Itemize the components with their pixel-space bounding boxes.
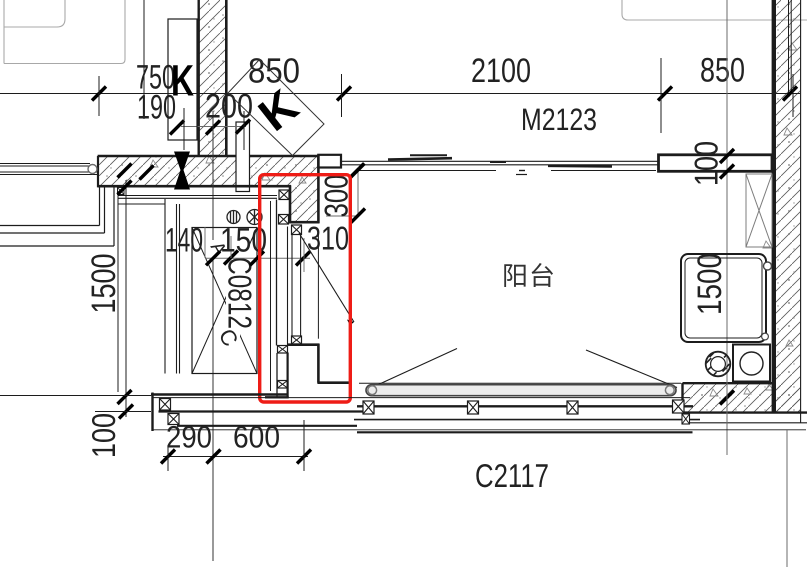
svg-text:1500: 1500 [85,254,123,314]
svg-text:K: K [171,57,194,106]
svg-text:M2123: M2123 [521,102,597,137]
svg-text:850: 850 [700,52,745,90]
svg-text:600: 600 [233,420,280,455]
svg-text:100: 100 [688,141,725,186]
svg-text:C2117: C2117 [475,457,549,494]
svg-text:1500: 1500 [691,253,729,315]
svg-text:2100: 2100 [471,52,531,90]
svg-text:阳台: 阳台 [502,261,556,291]
svg-text:200: 200 [205,88,253,126]
svg-text:290: 290 [166,420,212,455]
svg-text:C0812: C0812 [222,257,259,329]
svg-text:100: 100 [85,413,122,458]
svg-text:140: 140 [165,222,203,260]
svg-text:310: 310 [307,220,349,257]
